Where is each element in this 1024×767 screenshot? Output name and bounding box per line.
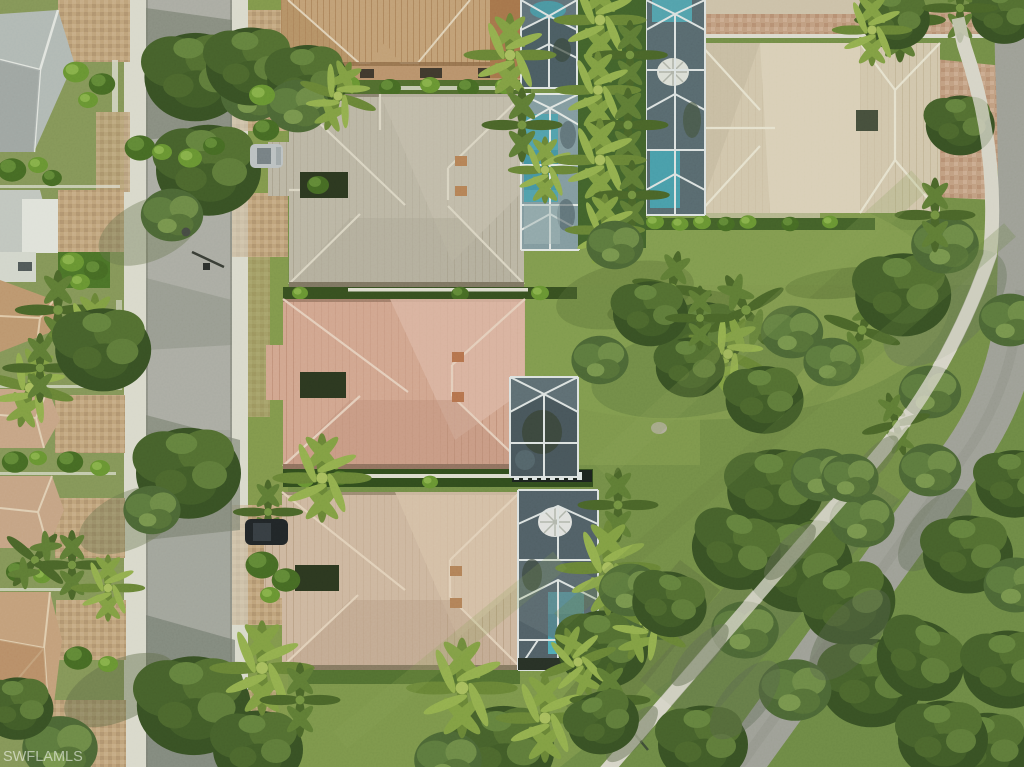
- svg-text:SWFLAMLS: SWFLAMLS: [3, 749, 83, 765]
